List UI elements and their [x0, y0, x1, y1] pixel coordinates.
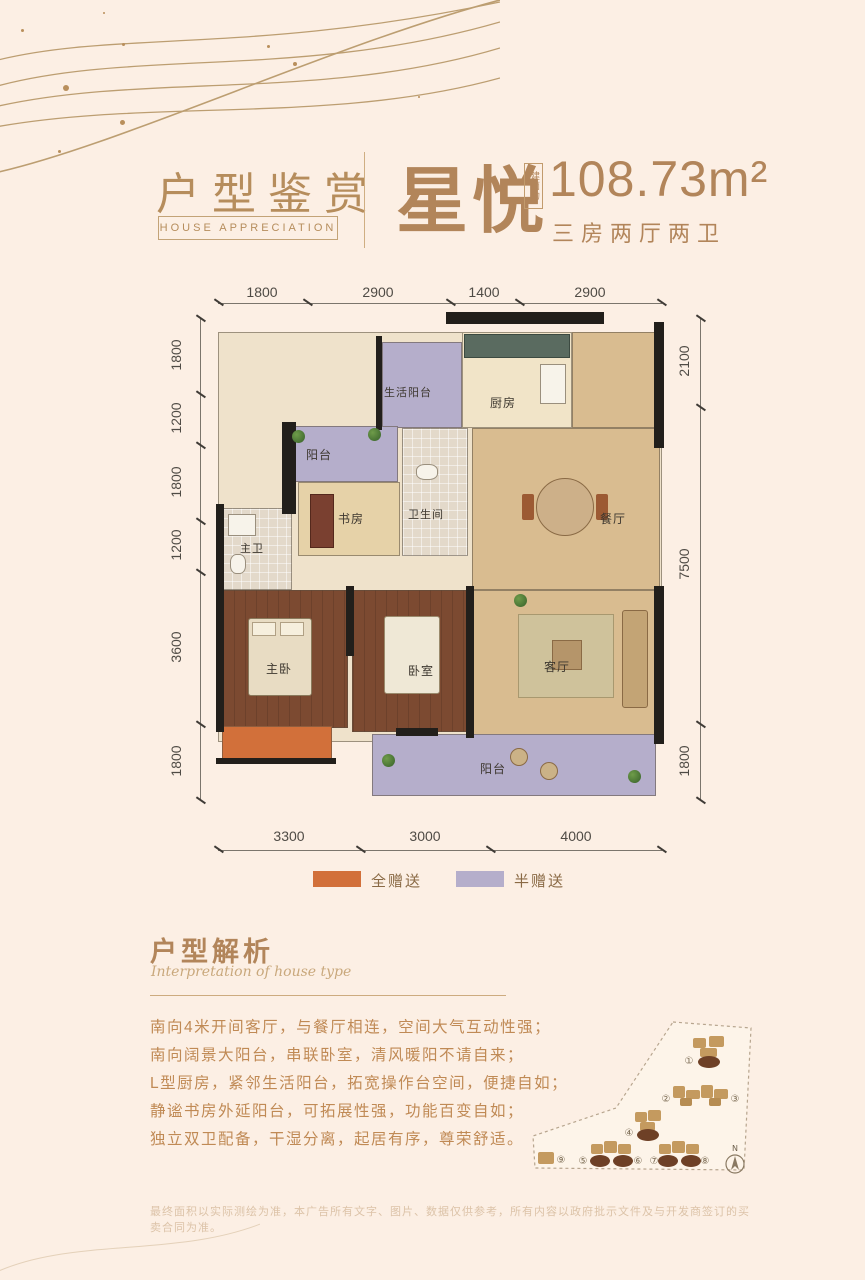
- pillow: [252, 622, 276, 636]
- feature-item: 静谧书房外延阳台，可拓展性强，功能百变自如；: [150, 1099, 524, 1121]
- building-number: ⑨: [557, 1155, 566, 1166]
- decorative-dot: [21, 29, 24, 32]
- wall-segment: [396, 728, 438, 736]
- room-label: 卧室: [408, 662, 434, 679]
- dim-value: 7500: [676, 534, 692, 594]
- legend-label-half-gift: 半赠送: [514, 870, 565, 891]
- feature-item: L型厨房，紧邻生活阳台，拓宽操作台空间，便捷自如；: [150, 1071, 568, 1093]
- dim-value: 1800: [168, 731, 184, 791]
- wall-segment: [466, 586, 474, 738]
- dim-value: 2900: [362, 284, 393, 300]
- dim-value: 1800: [168, 325, 184, 385]
- dimension-top: 1800 2900 1400 2900: [218, 284, 662, 312]
- plant-icon: [628, 770, 641, 783]
- building-number: ⑦: [650, 1156, 659, 1167]
- legend-swatch-half-gift: [456, 871, 504, 887]
- section-subtitle: HOUSE APPRECIATION: [158, 216, 338, 240]
- gift-area-full: [222, 726, 332, 762]
- analysis-subtitle: Interpretation of house type: [151, 964, 351, 980]
- wall-segment: [216, 504, 224, 732]
- wall-segment: [446, 312, 604, 324]
- toilet: [230, 554, 246, 574]
- wall-segment: [376, 336, 382, 430]
- plant-icon: [292, 430, 305, 443]
- dim-value: 1400: [468, 284, 499, 300]
- unit-layout: 三房两厅两卫: [552, 216, 726, 248]
- wall-segment: [346, 586, 354, 656]
- room-label: 生活阳台: [384, 384, 432, 400]
- dining-table: [536, 478, 594, 536]
- dim-value: 1800: [246, 284, 277, 300]
- kitchen-sink: [540, 364, 566, 404]
- legend-swatch-full-gift: [313, 871, 361, 887]
- section-title: 户型鉴赏: [156, 158, 380, 222]
- room-bathroom: [402, 428, 468, 556]
- poster-page: 户型鉴赏 HOUSE APPRECIATION 星悦 建面约 108.73m² …: [0, 0, 865, 1280]
- dim-value: 1200: [168, 515, 184, 575]
- dim-value: 2900: [574, 284, 605, 300]
- feature-item: 独立双卫配备，干湿分离，起居有序，尊荣舒适。: [150, 1127, 524, 1149]
- sofa: [622, 610, 648, 708]
- room-label: 餐厅: [600, 510, 626, 527]
- feature-item: 南向阔景大阳台，串联卧室，清风暖阳不请自来；: [150, 1043, 524, 1065]
- floor-plan: 生活阳台 厨房 阳台 书房 卫生间 餐厅 主卫 主卧 卧室 客厅 阳台: [218, 318, 662, 800]
- building-number: ⑥: [634, 1156, 643, 1167]
- dim-value: 3300: [273, 828, 304, 844]
- dimension-right: 2100 7500 1800: [678, 318, 722, 800]
- building-number: ④: [625, 1128, 634, 1139]
- site-map: ① ② ③ ④ ⑤ ⑥ ⑦ ⑧ ⑨ N: [523, 1012, 759, 1194]
- kitchen-counter: [464, 334, 570, 358]
- plant-icon: [382, 754, 395, 767]
- pillow: [280, 622, 304, 636]
- bathtub: [228, 514, 256, 536]
- decorative-dot: [122, 43, 125, 46]
- decorative-dot: [58, 150, 61, 153]
- room-label: 阳台: [480, 760, 506, 777]
- room-label: 主卫: [240, 540, 264, 556]
- dimension-left: 1800 1200 1800 1200 3600 1800: [168, 318, 212, 800]
- toilet: [416, 464, 438, 480]
- decorative-dot: [267, 45, 270, 48]
- plant-icon: [368, 428, 381, 441]
- building-number: ⑧: [701, 1156, 710, 1167]
- room-entry: [572, 332, 660, 428]
- dim-value: 2100: [676, 331, 692, 391]
- decorative-dot: [103, 12, 105, 14]
- room-label: 阳台: [306, 446, 332, 463]
- room-label: 厨房: [490, 394, 516, 411]
- legend-label-full-gift: 全赠送: [371, 870, 422, 891]
- building-number: ③: [731, 1094, 740, 1105]
- analysis-divider: [150, 995, 506, 996]
- building-number: ①: [685, 1056, 694, 1067]
- dimension-bottom: 3300 3000 4000: [218, 828, 662, 858]
- area-prefix-badge: 建面约: [524, 163, 543, 209]
- room-label: 卫生间: [408, 506, 444, 522]
- wall-segment: [654, 322, 664, 448]
- balcony-chair: [510, 748, 528, 766]
- decorative-dot: [63, 85, 69, 91]
- dining-chair: [522, 494, 534, 520]
- feature-item: 南向4米开间客厅，与餐厅相连，空间大气互动性强；: [150, 1015, 551, 1037]
- building-number: ⑤: [579, 1156, 588, 1167]
- dim-value: 3000: [409, 828, 440, 844]
- room-label: 客厅: [544, 658, 570, 675]
- decorative-dot: [293, 62, 297, 66]
- building-9: [538, 1152, 554, 1164]
- header-divider: [364, 152, 365, 248]
- room-label: 主卧: [266, 660, 292, 677]
- wall-segment: [654, 586, 664, 744]
- dim-value: 1800: [168, 452, 184, 512]
- dim-value: 1800: [676, 731, 692, 791]
- disclaimer-text: 最终面积以实际测绘为准，本广告所有文字、图片、数据仅供参考，所有内容以政府批示文…: [150, 1203, 750, 1235]
- building-number: ②: [662, 1094, 671, 1105]
- compass-label: N: [732, 1144, 738, 1153]
- dim-value: 1200: [168, 388, 184, 448]
- plant-icon: [514, 594, 527, 607]
- decorative-dot: [418, 96, 420, 98]
- wall-segment: [216, 758, 336, 764]
- dim-value: 3600: [168, 617, 184, 677]
- balcony-chair: [540, 762, 558, 780]
- bedroom-bed: [384, 616, 440, 694]
- dim-value: 4000: [560, 828, 591, 844]
- room-label: 书房: [338, 510, 364, 527]
- area-value: 108.73m²: [549, 150, 768, 208]
- decorative-dot: [120, 120, 125, 125]
- study-desk: [310, 494, 334, 548]
